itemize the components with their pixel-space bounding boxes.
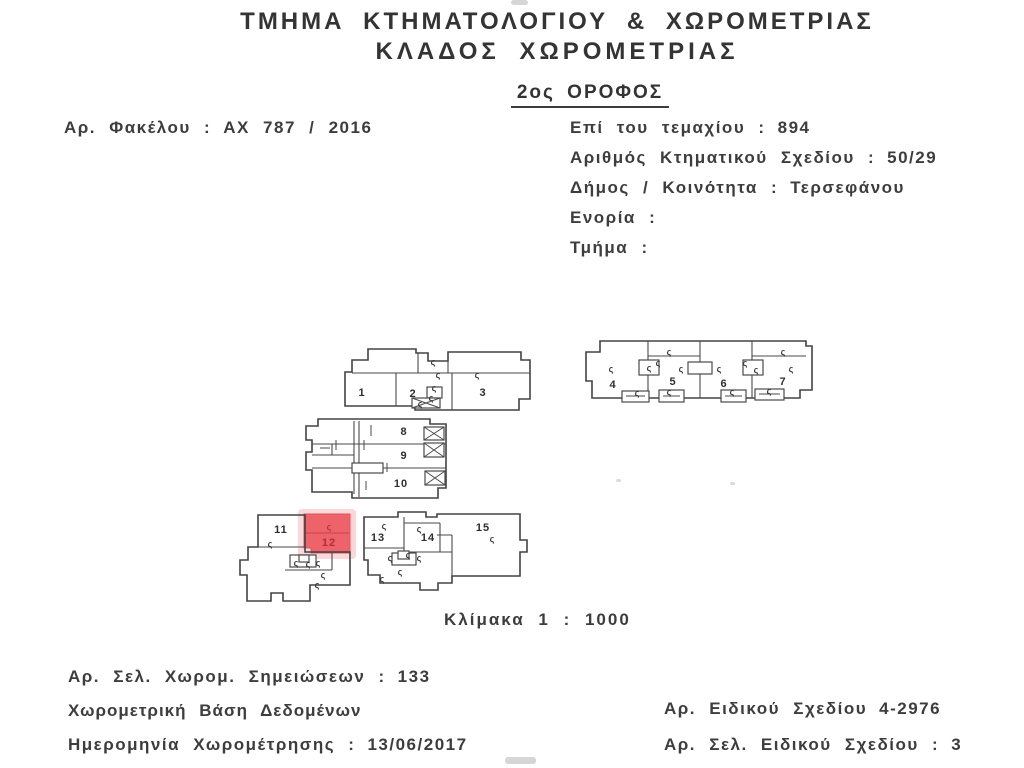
unit-label-4: 4 [609,379,616,391]
stair-mark: ς [436,370,441,380]
unit-label-10: 10 [394,478,408,490]
stair-mark: ς [679,364,684,374]
special-plan-page-value: 3 [951,735,962,754]
stair-mark: ς [609,364,614,374]
stair-mark: ς [789,364,794,374]
building-units-1-3: 1 2 3 ς ς ς ς ς ς [345,349,530,410]
special-plan-label: Αρ. Ειδικού Σχεδίου [664,699,867,718]
unit-label-12: 12 [322,537,336,549]
document-page: ΤΜΗΜΑ ΚΤΗΜΑΤΟΛΟΓΙΟΥ & ΧΩΡΟΜΕΤΡΙΑΣ ΚΛΑΔΟΣ… [0,0,1024,768]
building-units-8-10: 8 9 10 [306,419,446,498]
unit-label-8: 8 [400,426,407,438]
survey-date-label: Ημερομηνία Χωρομέτρησης : [68,735,355,754]
stair-mark: ς [316,558,321,568]
stair-mark: ς [717,364,722,374]
stair-mark: ς [667,387,672,397]
balcony-box [622,389,784,402]
unit-label-3: 3 [479,387,486,399]
building-units-11-12: 11 12 ς ς ς ς ς ς ς [240,509,356,601]
unit-label-13: 13 [371,532,385,544]
special-plan-row: Αρ. Ειδικού Σχεδίου4-2976 [664,699,941,719]
special-plan-page-row: Αρ. Σελ. Ειδικού Σχεδίου :3 [664,735,962,755]
stair-mark: ς [315,580,320,590]
stair-mark: ς [388,553,393,563]
hall-box [688,362,712,374]
building-units-13-15: 13 14 15 ς ς ς ς ς ς ς ς [364,512,527,590]
special-plan-value: 4-2976 [879,699,941,718]
stair-mark: ς [656,358,661,368]
stair-mark: ς [667,347,672,357]
stair-mark: ς [635,388,640,398]
stair-mark: ς [294,558,299,568]
unit-label-9: 9 [400,450,407,462]
stair-mark: ς [781,347,786,357]
unit-label-1: 1 [358,387,365,399]
stair-mark: ς [417,553,422,563]
stair-mark: ς [730,387,735,397]
stair-mark: ς [306,559,311,569]
stair-mark: ς [647,363,652,373]
stair-mark: ς [321,570,326,580]
floor-plan: 1 2 3 ς ς ς ς ς ς 4 5 6 [0,0,1024,768]
stair-mark: ς [475,370,480,380]
stair-mark: ς [380,574,385,584]
survey-notes-page-label: Αρ. Σελ. Χωρομ. Σημειώσεων : [68,667,386,686]
stair-mark: ς [429,393,434,403]
stair-mark: ς [754,365,759,375]
stair-mark: ς [406,550,411,560]
stairwell-hatch [424,427,445,485]
unit-label-15: 15 [476,522,490,534]
stair-box [352,463,383,473]
stair-mark: ς [431,357,436,367]
unit-label-7: 7 [779,376,786,388]
unit-label-6: 6 [720,378,727,390]
unit-label-14: 14 [421,532,435,544]
stair-mark: ς [382,521,387,531]
building-units-4-7: 4 5 6 7 ς ς ς ς ς ς ς ς ς ς ς ς ς ς [586,341,812,402]
survey-date-row: Ημερομηνία Χωρομέτρησης :13/06/2017 [68,735,468,755]
stair-mark: ς [327,522,332,532]
stair-mark: ς [268,539,273,549]
survey-database-row: Χωρομετρική Βάση Δεδομένων [68,701,361,721]
survey-notes-page-row: Αρ. Σελ. Χωρομ. Σημειώσεων :133 [68,667,431,687]
unit-label-2: 2 [409,388,416,400]
survey-notes-page-value: 133 [398,667,431,686]
stair-mark: ς [490,534,495,544]
stair-mark: ς [417,524,422,534]
special-plan-page-label: Αρ. Σελ. Ειδικού Σχεδίου : [664,735,939,754]
survey-date-value: 13/06/2017 [367,735,467,754]
stair-mark: ς [398,567,403,577]
scale-label: Κλίμακα 1 : 1000 [444,610,631,630]
stair-mark: ς [767,386,772,396]
stair-mark: ς [418,399,423,409]
stair-mark: ς [743,358,748,368]
unit-label-11: 11 [274,524,288,536]
survey-database-label: Χωρομετρική Βάση Δεδομένων [68,701,361,720]
stair-mark: ς [432,383,437,393]
